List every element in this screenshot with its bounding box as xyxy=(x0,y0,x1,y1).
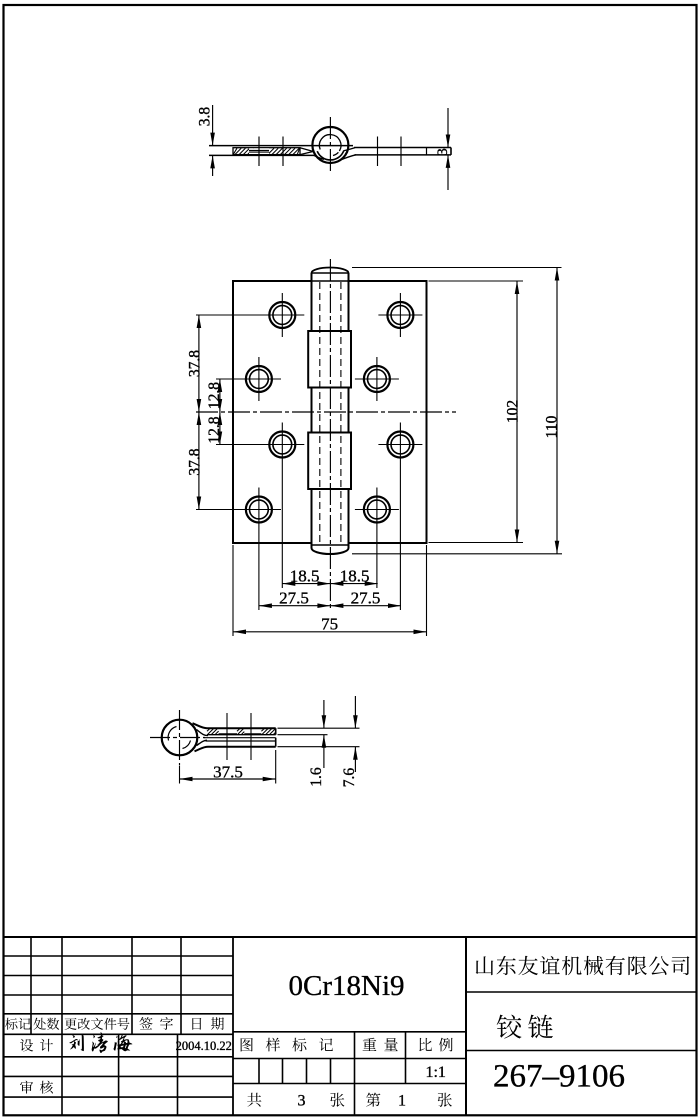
svg-text:1.6: 1.6 xyxy=(308,767,325,787)
svg-text:37.8: 37.8 xyxy=(187,350,204,377)
svg-text:3.8: 3.8 xyxy=(197,107,214,127)
svg-text:75: 75 xyxy=(321,615,338,634)
svg-text:18.5: 18.5 xyxy=(340,567,370,586)
svg-text:2004.10.22: 2004.10.22 xyxy=(176,1039,232,1053)
svg-text:12.8: 12.8 xyxy=(206,416,223,443)
svg-text:37.5: 37.5 xyxy=(213,763,243,782)
svg-text:27.5: 27.5 xyxy=(351,589,381,608)
svg-text:1: 1 xyxy=(398,1093,406,1110)
svg-text:102: 102 xyxy=(505,400,522,423)
svg-text:27.5: 27.5 xyxy=(279,589,309,608)
svg-text:3: 3 xyxy=(298,1093,306,1110)
svg-text:1:1: 1:1 xyxy=(425,1064,445,1081)
svg-text:18.5: 18.5 xyxy=(290,567,320,586)
svg-text:7.6: 7.6 xyxy=(341,768,358,788)
svg-text:12.8: 12.8 xyxy=(206,382,223,409)
svg-text:3: 3 xyxy=(435,148,451,156)
svg-text:110: 110 xyxy=(544,415,561,438)
svg-text:0Cr18Ni9: 0Cr18Ni9 xyxy=(289,970,405,1002)
svg-text:37.8: 37.8 xyxy=(187,448,204,475)
svg-text:267–9106: 267–9106 xyxy=(493,1058,625,1094)
